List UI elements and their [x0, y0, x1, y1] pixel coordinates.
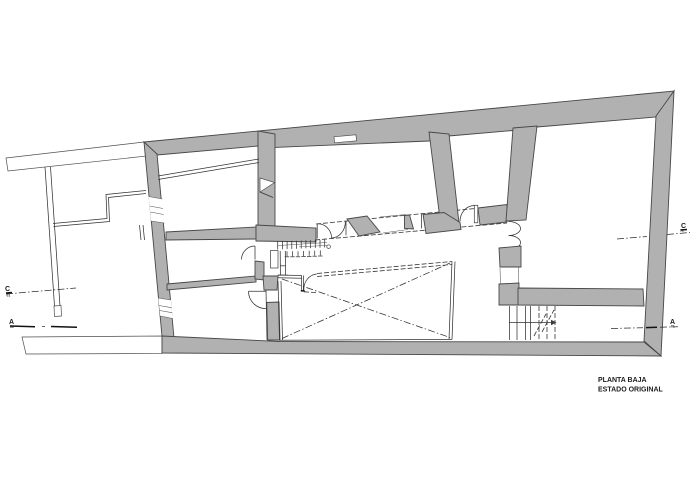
svg-text:PLANTA BAJA: PLANTA BAJA [598, 377, 647, 384]
svg-text:C: C [5, 286, 10, 293]
svg-text:01: 01 [671, 325, 675, 329]
svg-text:ESTADO ORIGINAL: ESTADO ORIGINAL [598, 386, 664, 393]
